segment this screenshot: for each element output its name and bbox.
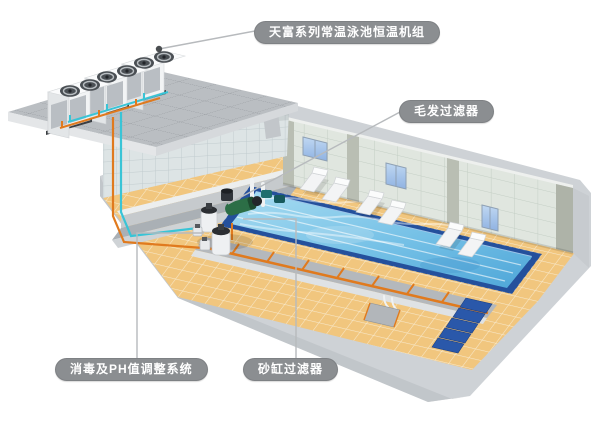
hair-filter-device <box>221 188 233 201</box>
sand-filter-tank <box>201 203 217 232</box>
sand-filter-tank <box>212 224 230 255</box>
label-disinfection-ph-system: 消毒及PH值调整系统 <box>55 358 208 381</box>
label-heat-pump-unit: 天富系列常温泳池恒温机组 <box>254 21 440 44</box>
pool-system-diagram: 天富系列常温泳池恒温机组 毛发过滤器 消毒及PH值调整系统 砂缸过滤器 <box>0 0 600 429</box>
label-hair-filter: 毛发过滤器 <box>399 100 494 123</box>
leader-heat-pump <box>159 31 255 49</box>
leader-dot <box>156 46 162 52</box>
label-sand-filter: 砂缸过滤器 <box>243 358 338 381</box>
window <box>482 205 498 231</box>
window <box>386 163 406 189</box>
